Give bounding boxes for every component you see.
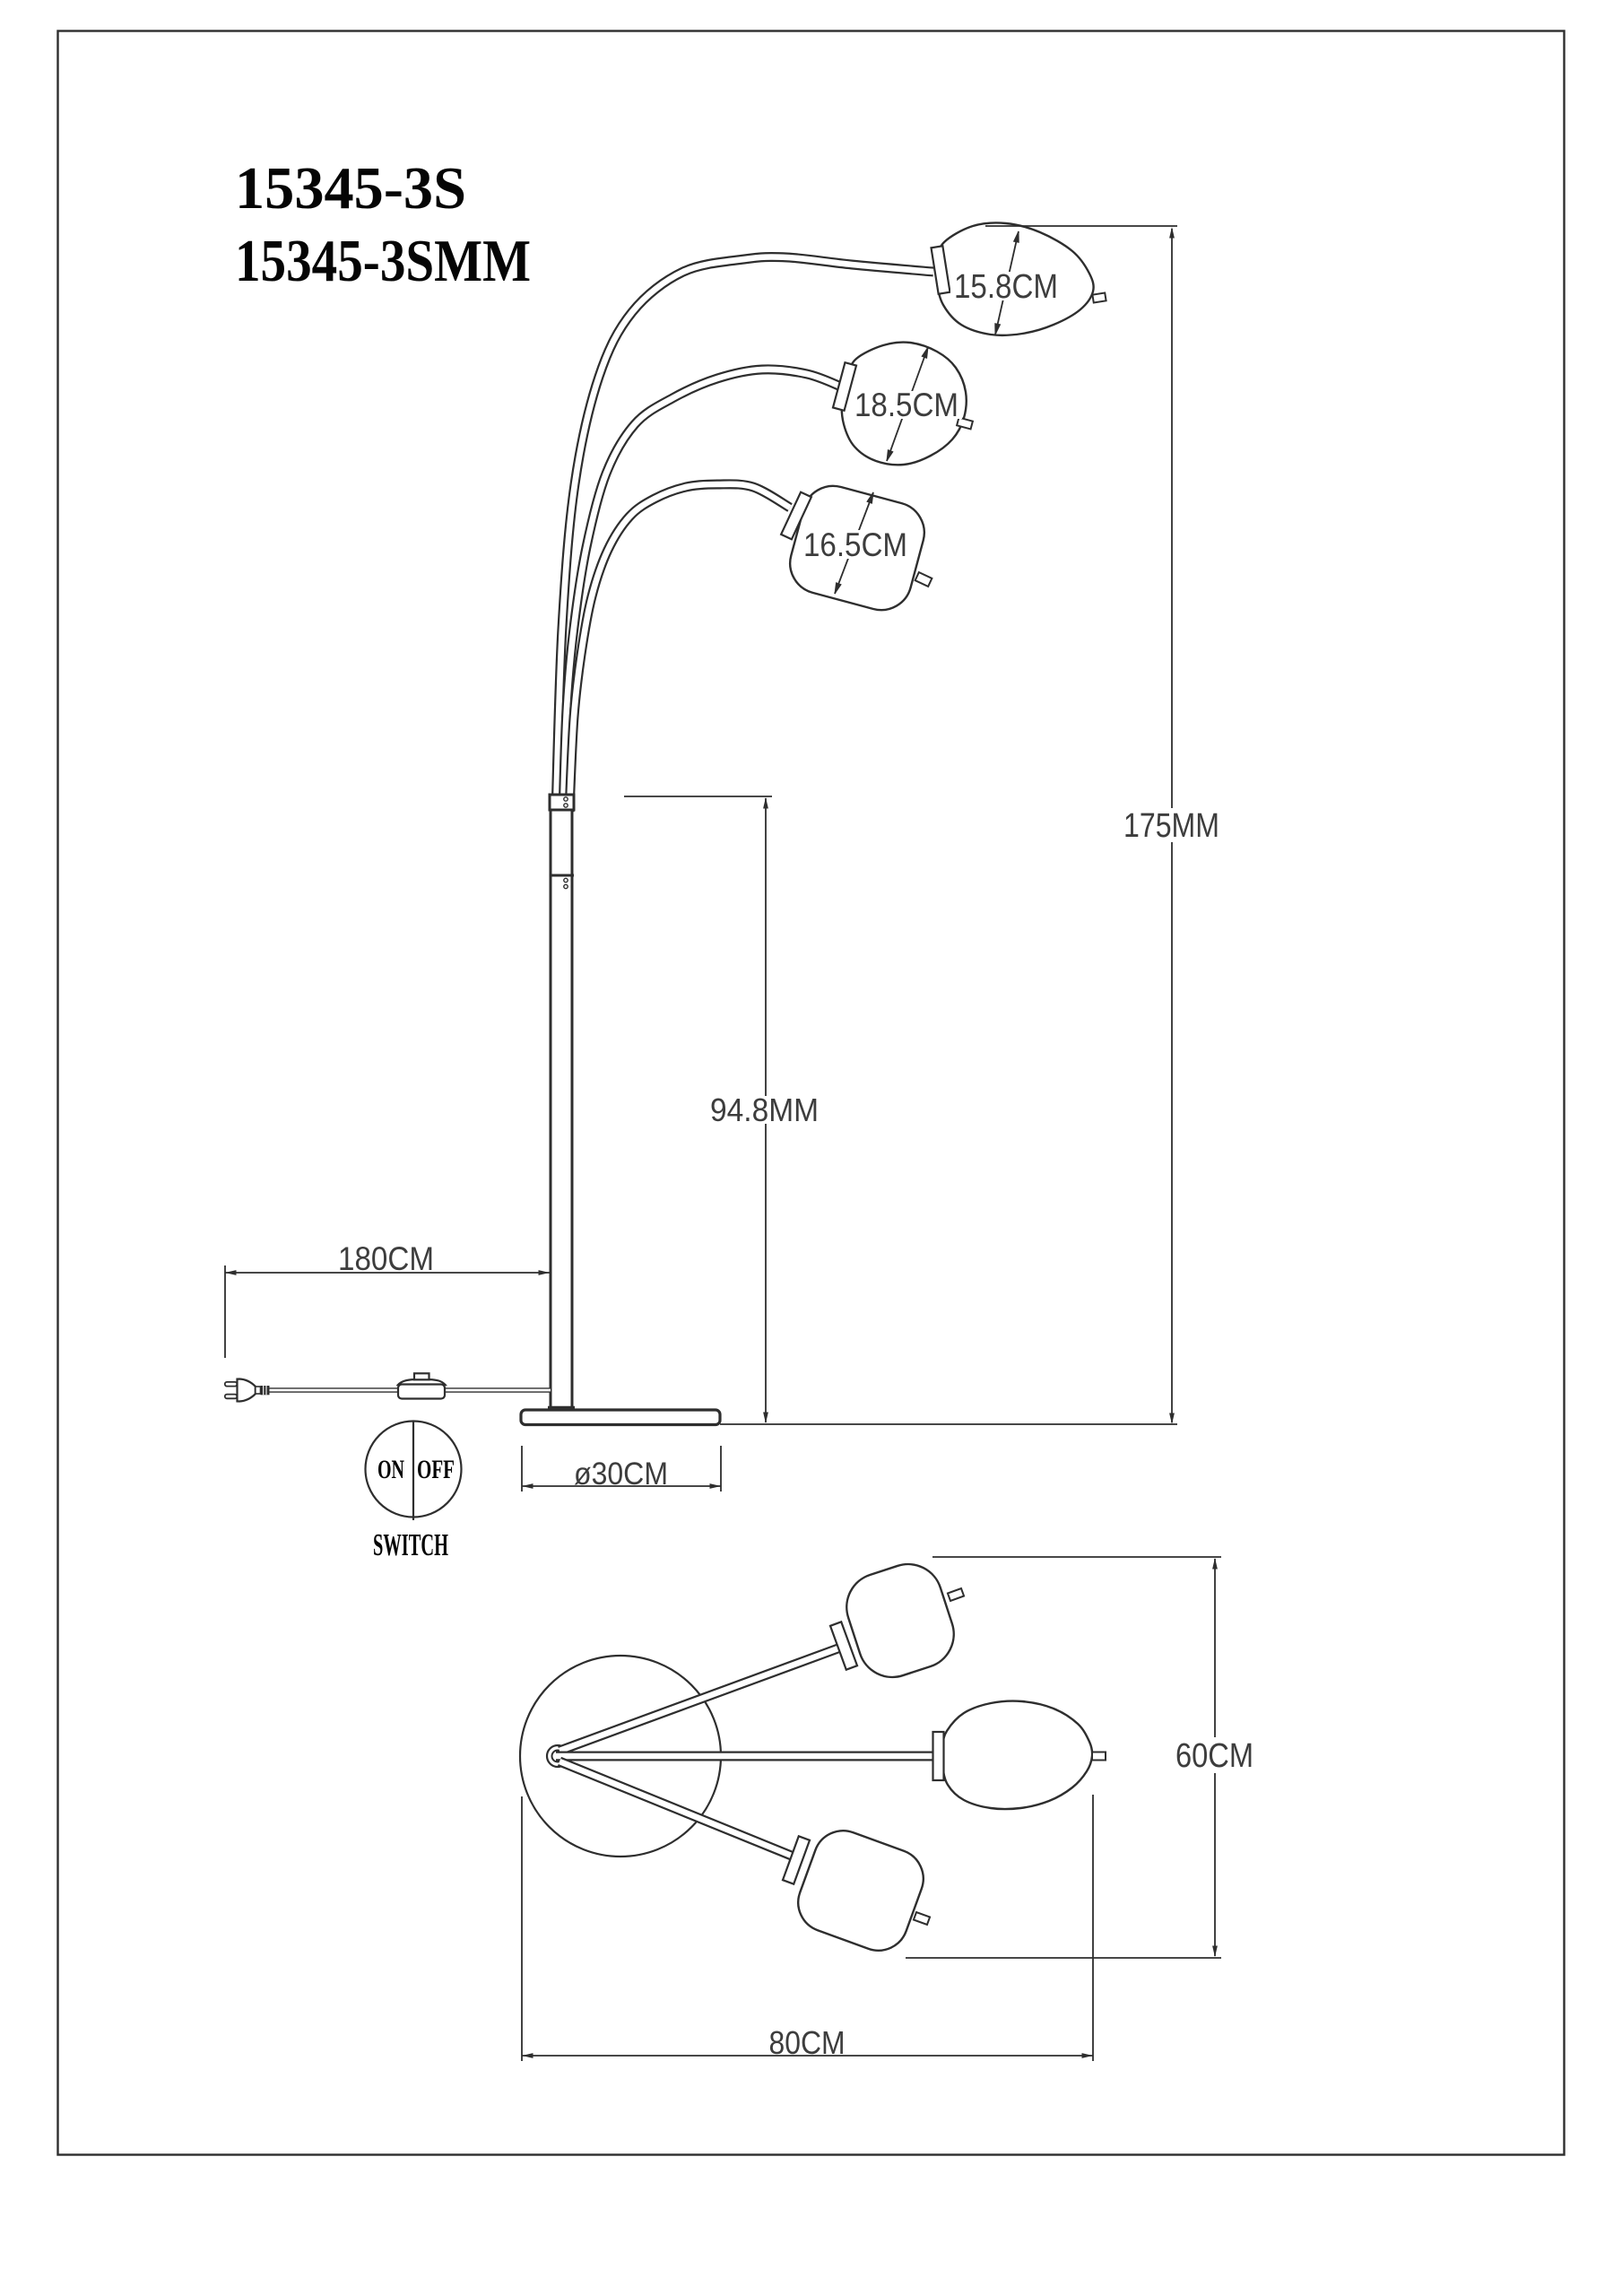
svg-text:16.5CM: 16.5CM [803,526,907,563]
svg-text:175MM: 175MM [1123,807,1219,845]
svg-text:SWITCH: SWITCH [373,1527,448,1562]
svg-text:60CM: 60CM [1175,1737,1253,1775]
svg-text:15345-3SMM: 15345-3SMM [235,228,531,294]
svg-text:94.8MM: 94.8MM [710,1091,819,1128]
svg-text:180CM: 180CM [338,1240,434,1277]
svg-text:15.8CM: 15.8CM [954,268,1058,306]
svg-text:ø30CM: ø30CM [574,1457,668,1492]
svg-text:ON: ON [377,1455,404,1484]
svg-text:OFF: OFF [417,1455,455,1484]
svg-text:18.5CM: 18.5CM [854,387,958,423]
svg-text:15345-3S: 15345-3S [235,155,466,222]
svg-text:80CM: 80CM [769,2024,846,2061]
